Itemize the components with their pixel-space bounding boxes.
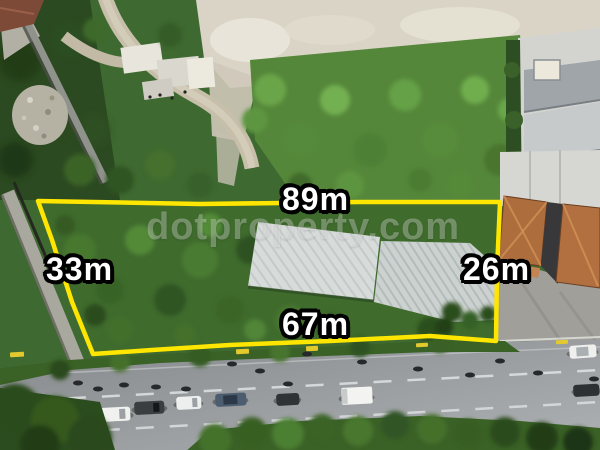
dimension-label-right: 26m [463, 251, 530, 287]
skylight [534, 60, 560, 80]
gravel-pile [12, 85, 68, 145]
car [571, 384, 600, 398]
dimension-label-top: 89m [282, 181, 349, 217]
banana-grove [242, 35, 540, 205]
dimension-label-bottom: 67m [282, 306, 349, 342]
car [212, 392, 249, 407]
aerial-photo: dotproperty.com 89m 33m 26m 67m [0, 0, 600, 450]
dimension-label-left: 33m [46, 251, 113, 287]
car [273, 393, 302, 406]
box-truck [338, 386, 375, 405]
car [566, 344, 599, 359]
car [173, 396, 204, 411]
car [131, 400, 168, 415]
